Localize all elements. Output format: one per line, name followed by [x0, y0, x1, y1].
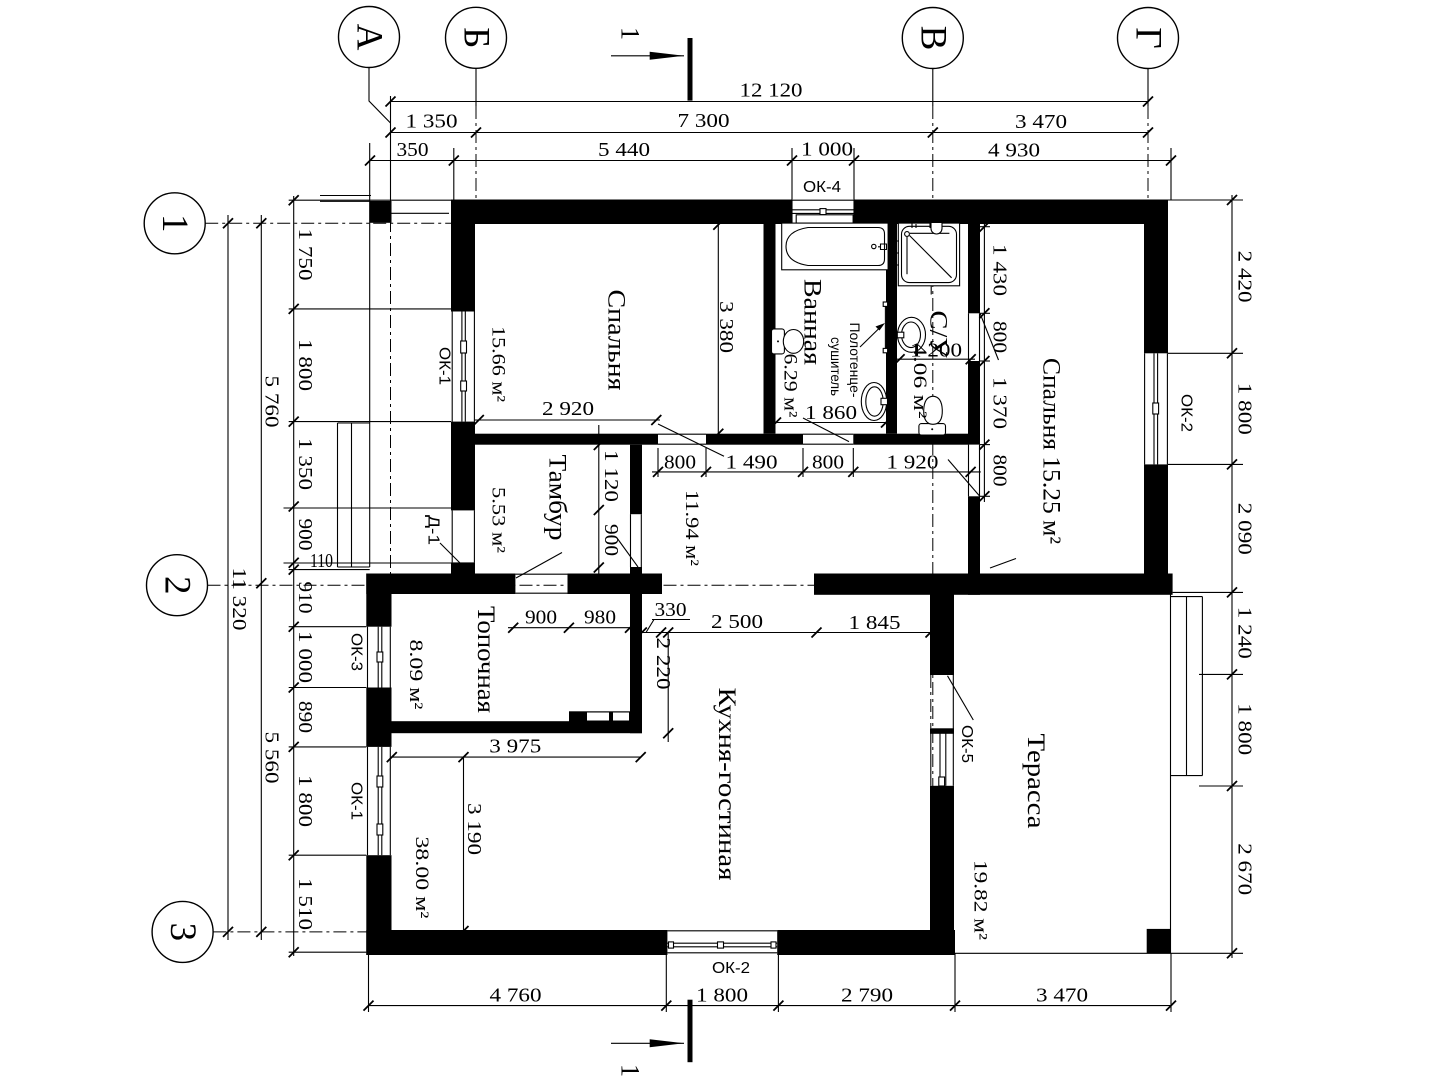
svg-text:Топочная: Топочная	[472, 606, 499, 714]
svg-text:800: 800	[812, 453, 844, 474]
svg-text:1 490: 1 490	[726, 453, 778, 474]
svg-text:110: 110	[310, 551, 333, 572]
svg-text:11.94 м²: 11.94 м²	[681, 490, 702, 566]
svg-text:4 760: 4 760	[490, 986, 542, 1007]
svg-text:1 750: 1 750	[294, 229, 315, 281]
svg-text:3 470: 3 470	[1015, 112, 1067, 133]
svg-text:3 975: 3 975	[489, 737, 541, 758]
svg-text:Д-1: Д-1	[425, 515, 442, 545]
svg-text:3 190: 3 190	[463, 803, 484, 855]
svg-text:5 760: 5 760	[261, 376, 282, 428]
svg-text:ОК-3: ОК-3	[348, 633, 365, 671]
svg-text:1 350: 1 350	[406, 112, 458, 133]
svg-text:800: 800	[989, 455, 1010, 487]
svg-text:2 790: 2 790	[841, 986, 893, 1007]
svg-text:ОК-1: ОК-1	[348, 782, 365, 820]
svg-text:А: А	[349, 24, 390, 51]
svg-text:900: 900	[525, 608, 557, 629]
svg-text:1 000: 1 000	[801, 140, 853, 161]
svg-text:2 220: 2 220	[652, 638, 673, 690]
svg-text:1 350: 1 350	[294, 438, 315, 490]
svg-text:890: 890	[294, 701, 315, 733]
svg-text:1 240: 1 240	[1234, 607, 1255, 659]
svg-text:ОК-2: ОК-2	[1178, 394, 1195, 432]
svg-text:ОК-2: ОК-2	[712, 960, 750, 977]
svg-text:8.09 м²: 8.09 м²	[405, 640, 426, 710]
svg-text:1: 1	[616, 1064, 645, 1077]
svg-text:ОК-5: ОК-5	[958, 725, 975, 763]
svg-text:Г: Г	[1128, 27, 1169, 48]
svg-text:5 440: 5 440	[598, 140, 650, 161]
svg-text:Полотенце-: Полотенце-	[847, 323, 863, 398]
svg-text:2 090: 2 090	[1234, 503, 1255, 555]
svg-text:12 120: 12 120	[740, 81, 803, 102]
svg-text:6.29 м²: 6.29 м²	[780, 354, 801, 418]
svg-text:910: 910	[294, 582, 315, 614]
svg-text:1 510: 1 510	[294, 878, 315, 930]
svg-text:1 370: 1 370	[989, 377, 1010, 429]
svg-text:2 500: 2 500	[711, 612, 763, 633]
svg-text:1 800: 1 800	[294, 775, 315, 827]
svg-text:ОК-4: ОК-4	[803, 179, 841, 196]
svg-text:2 920: 2 920	[542, 399, 594, 420]
svg-text:800: 800	[664, 453, 696, 474]
svg-text:сушитель: сушитель	[828, 337, 844, 396]
svg-text:4.06 м²: 4.06 м²	[909, 344, 930, 419]
svg-text:1: 1	[154, 214, 195, 233]
svg-text:Спальня 15.25 м²: Спальня 15.25 м²	[1038, 358, 1065, 544]
svg-text:330: 330	[655, 600, 687, 621]
svg-text:Б: Б	[456, 27, 497, 48]
svg-text:1 800: 1 800	[1234, 383, 1255, 435]
svg-text:В: В	[912, 26, 953, 51]
svg-text:1 800: 1 800	[1234, 703, 1255, 755]
svg-text:1 430: 1 430	[989, 244, 1010, 296]
svg-text:4 930: 4 930	[988, 141, 1040, 162]
svg-text:7 300: 7 300	[678, 111, 730, 132]
svg-text:1 800: 1 800	[294, 339, 315, 391]
svg-text:1 120: 1 120	[600, 450, 621, 502]
svg-text:1 920: 1 920	[886, 453, 938, 474]
svg-text:Тамбур: Тамбур	[544, 455, 571, 541]
svg-text:38.00 м²: 38.00 м²	[411, 837, 432, 919]
svg-text:3 380: 3 380	[715, 301, 736, 353]
svg-text:15.66 м²: 15.66 м²	[488, 326, 509, 402]
svg-text:2 420: 2 420	[1234, 251, 1255, 303]
svg-text:1 800: 1 800	[696, 986, 748, 1007]
svg-text:2 670: 2 670	[1234, 843, 1255, 895]
svg-text:900: 900	[294, 519, 315, 551]
svg-text:3: 3	[162, 923, 203, 942]
svg-text:11 320: 11 320	[228, 568, 249, 631]
svg-text:Терасса: Терасса	[1022, 734, 1049, 829]
svg-text:Спальня: Спальня	[603, 290, 630, 392]
svg-text:980: 980	[584, 608, 616, 629]
svg-text:1: 1	[616, 27, 645, 40]
svg-text:ОК-1: ОК-1	[436, 347, 453, 385]
svg-text:1 845: 1 845	[849, 613, 901, 634]
svg-text:1 000: 1 000	[294, 631, 315, 683]
svg-text:5.53 м²: 5.53 м²	[488, 487, 509, 553]
svg-text:1 860: 1 860	[805, 403, 857, 424]
svg-text:2: 2	[157, 576, 198, 595]
svg-text:3 470: 3 470	[1036, 986, 1088, 1007]
svg-text:900: 900	[600, 524, 621, 556]
svg-text:19.82 м²: 19.82 м²	[970, 860, 991, 940]
svg-text:350: 350	[397, 140, 429, 161]
svg-text:Ванная: Ванная	[799, 279, 826, 366]
svg-text:5 560: 5 560	[261, 732, 282, 784]
svg-text:800: 800	[989, 321, 1010, 353]
svg-text:Кухня-гостиная: Кухня-гостиная	[713, 688, 740, 882]
